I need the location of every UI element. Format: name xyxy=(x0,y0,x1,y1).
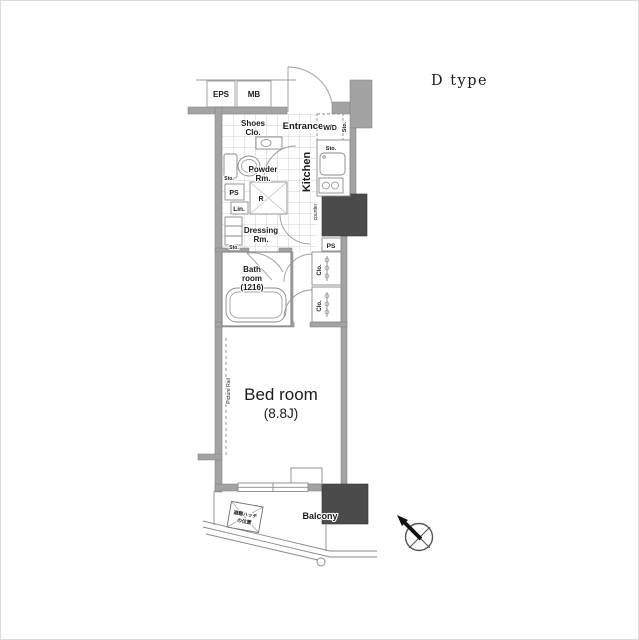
mb-label: MB xyxy=(248,90,261,99)
shoes-closet-label-1: Shoes xyxy=(241,119,266,128)
dressing-room-label-1: Dressing xyxy=(244,226,278,235)
powder-room-label-2: Rm. xyxy=(255,174,270,183)
exterior-boxes xyxy=(196,80,296,107)
bath-room-label-3: (1216) xyxy=(240,283,263,292)
entrance-label: Entrance xyxy=(283,121,324,132)
compass-icon xyxy=(397,515,433,551)
bath-room-label-1: Bath xyxy=(243,265,261,274)
shoe-counter xyxy=(256,137,282,149)
shoes-closet-label-2: Clo. xyxy=(245,128,260,137)
closet-label-upper: Clo. xyxy=(317,264,323,276)
kitchen-label: Kitchen xyxy=(301,152,313,193)
ps-label-right: PS xyxy=(327,243,336,250)
bath-room-label-2: room xyxy=(242,274,262,283)
dressing-room-label-2: Rm. xyxy=(253,235,268,244)
counter-label: counter xyxy=(313,203,319,220)
bedroom-label: Bed room xyxy=(244,385,318,404)
eps-label: EPS xyxy=(213,90,230,99)
picture-rail-label: Picture Rail xyxy=(226,378,232,404)
closet-label-lower: Clo. xyxy=(317,300,323,312)
balcony-rail xyxy=(203,521,330,551)
floor-plan-page: D type EPS MB xyxy=(0,0,639,640)
ps-label-left: PS xyxy=(229,190,239,197)
linen-label: Lin. xyxy=(233,206,245,213)
refrigerator-label: R xyxy=(258,196,263,203)
sto-label-wd: Sto. xyxy=(342,121,348,132)
powder-room-label-1: Powder xyxy=(249,165,278,174)
bedroom-step xyxy=(291,468,322,484)
bedroom-window xyxy=(238,483,308,492)
wd-label: W/D xyxy=(323,125,337,132)
balcony-label: Balcony xyxy=(302,511,337,521)
bedroom-size-label: (8.8J) xyxy=(264,406,299,421)
evacuation-hatch: 避難ハッチ の位置 xyxy=(227,501,263,532)
page-title: D type xyxy=(431,73,488,89)
pillar-top xyxy=(322,194,367,236)
refrigerator-box xyxy=(250,182,287,214)
storage-cabinet xyxy=(225,217,242,245)
entrance-door xyxy=(288,67,333,112)
sto-label-kitchen: Sto. xyxy=(326,146,337,152)
kitchen-sink xyxy=(320,153,345,175)
sto-label-dressing: Sto. xyxy=(229,245,239,251)
floor-plan-svg: D type EPS MB xyxy=(0,0,639,640)
sto-label-powder: Sto. xyxy=(224,176,234,182)
bathtub xyxy=(226,288,286,322)
